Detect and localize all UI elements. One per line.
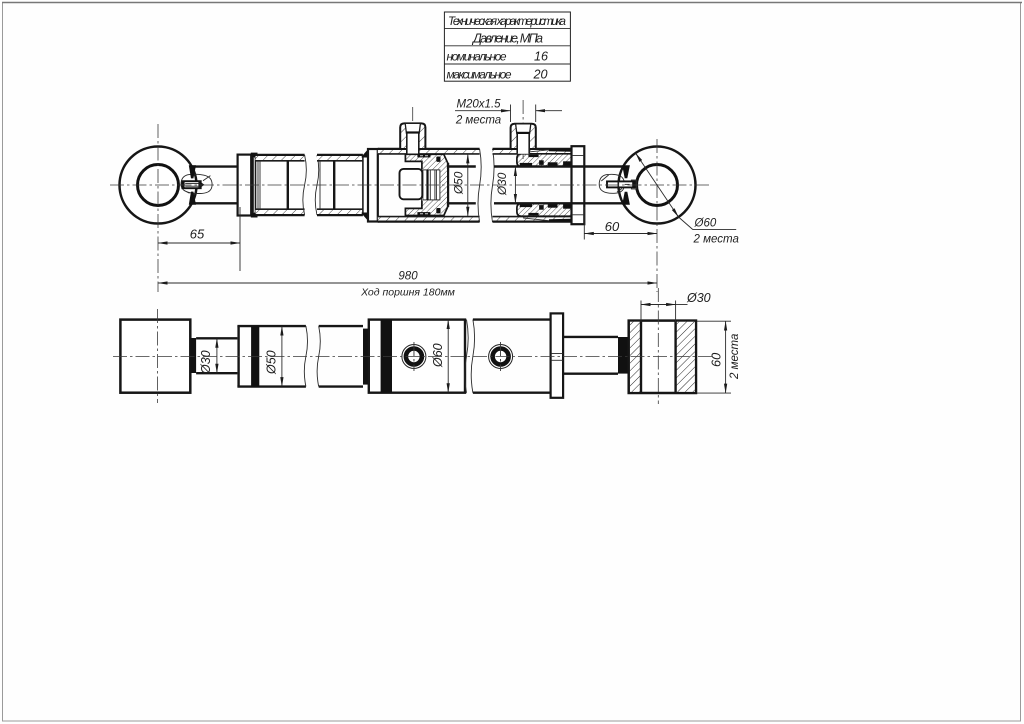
svg-text:980: 980	[398, 271, 418, 283]
svg-text:M20x1.5: M20x1.5	[456, 99, 501, 111]
svg-text:номинальное: номинальное	[447, 50, 507, 64]
svg-text:Ø60: Ø60	[431, 343, 445, 368]
svg-text:Ø50: Ø50	[265, 350, 279, 375]
svg-text:20: 20	[533, 67, 548, 81]
svg-text:60: 60	[709, 352, 724, 367]
svg-text:2 места: 2 места	[693, 234, 739, 246]
svg-text:Ход поршня 180мм: Ход поршня 180мм	[360, 287, 455, 299]
svg-text:Ø50: Ø50	[452, 171, 466, 195]
svg-text:максимальное: максимальное	[447, 67, 512, 81]
svg-text:Ø60: Ø60	[694, 218, 717, 230]
svg-text:Техническая характеристика: Техническая характеристика	[448, 15, 567, 28]
svg-text:Ø30: Ø30	[686, 291, 711, 305]
svg-text:Ø30: Ø30	[495, 172, 509, 196]
svg-text:Давление, МПа: Давление, МПа	[471, 32, 543, 46]
svg-text:2 места: 2 места	[729, 334, 741, 380]
svg-text:16: 16	[534, 50, 548, 64]
svg-text:60: 60	[605, 219, 620, 234]
svg-text:Ø30: Ø30	[199, 350, 213, 375]
svg-text:65: 65	[190, 227, 205, 242]
svg-text:2 места: 2 места	[455, 115, 501, 127]
